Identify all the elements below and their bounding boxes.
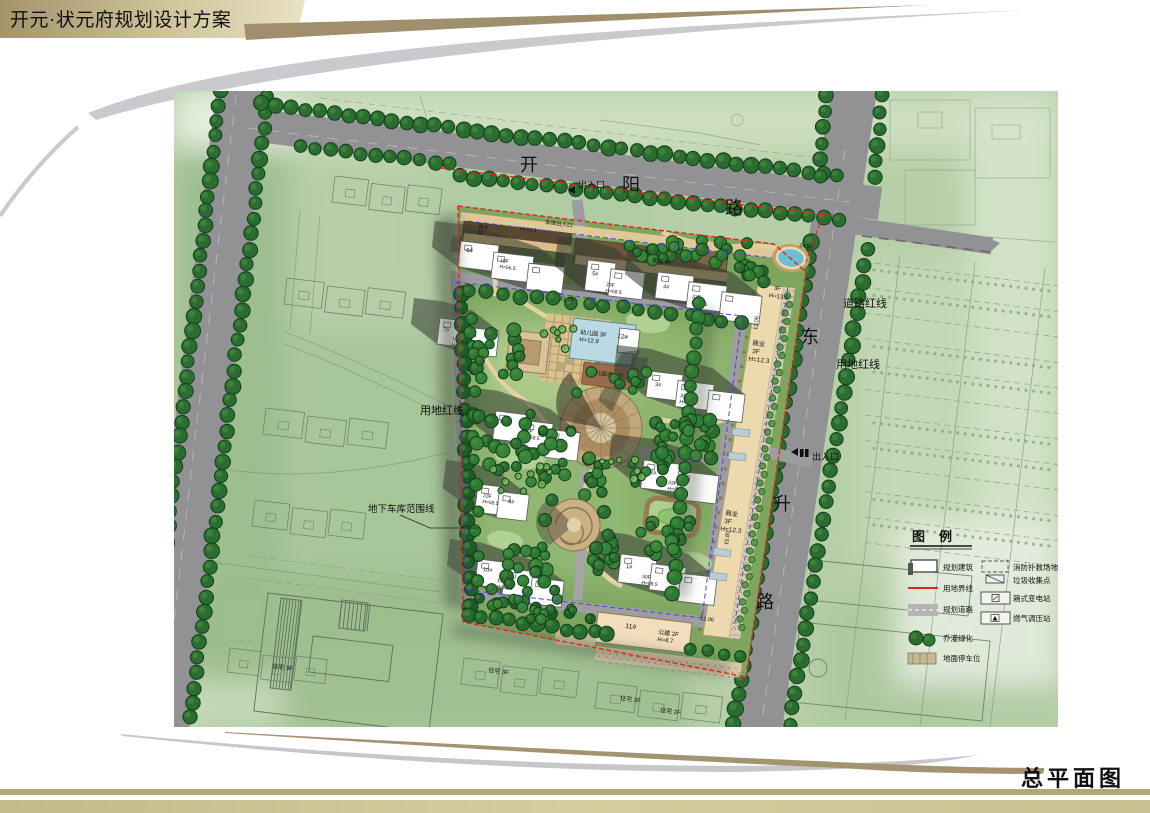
svg-text:出入口: 出入口 xyxy=(812,451,839,462)
svg-text:3F: 3F xyxy=(724,518,732,526)
svg-text:路: 路 xyxy=(725,198,743,218)
svg-text:开: 开 xyxy=(520,155,538,175)
svg-text:垃圾收集点: 垃圾收集点 xyxy=(1013,575,1051,585)
svg-text:用地红线: 用地红线 xyxy=(420,403,464,417)
svg-text:燃气调压站: 燃气调压站 xyxy=(1013,613,1051,623)
svg-text:规划道路: 规划道路 xyxy=(943,604,973,614)
svg-text:地面停车位: 地面停车位 xyxy=(943,653,981,663)
svg-text:11#: 11# xyxy=(625,623,637,631)
svg-text:图例: 图例 xyxy=(912,529,966,544)
svg-text:出入口: 出入口 xyxy=(578,179,605,190)
svg-text:地下车库范围线: 地下车库范围线 xyxy=(368,503,435,515)
svg-text:开元·状元府规划设计方案: 开元·状元府规划设计方案 xyxy=(10,9,231,31)
svg-text:阳: 阳 xyxy=(622,175,640,195)
svg-text:规划建筑: 规划建筑 xyxy=(943,562,973,572)
svg-text:3F: 3F xyxy=(773,286,781,293)
svg-text:10#: 10# xyxy=(483,567,494,574)
svg-text:乔灌绿化: 乔灌绿化 xyxy=(943,633,973,643)
svg-text:箱式变电站: 箱式变电站 xyxy=(1013,593,1051,603)
svg-text:消防扑救场地: 消防扑救场地 xyxy=(1013,562,1058,572)
svg-text:3F: 3F xyxy=(752,348,760,356)
svg-text:升: 升 xyxy=(773,494,791,514)
svg-text:东: 东 xyxy=(801,327,819,347)
svg-text:总平面图: 总平面图 xyxy=(1021,766,1125,791)
svg-text:12#: 12# xyxy=(617,333,629,341)
svg-text:道路红线: 道路红线 xyxy=(843,296,887,310)
svg-text:3F: 3F xyxy=(477,230,484,237)
svg-text:用地红线: 用地红线 xyxy=(836,357,880,371)
svg-text:用地界线: 用地界线 xyxy=(943,583,973,593)
